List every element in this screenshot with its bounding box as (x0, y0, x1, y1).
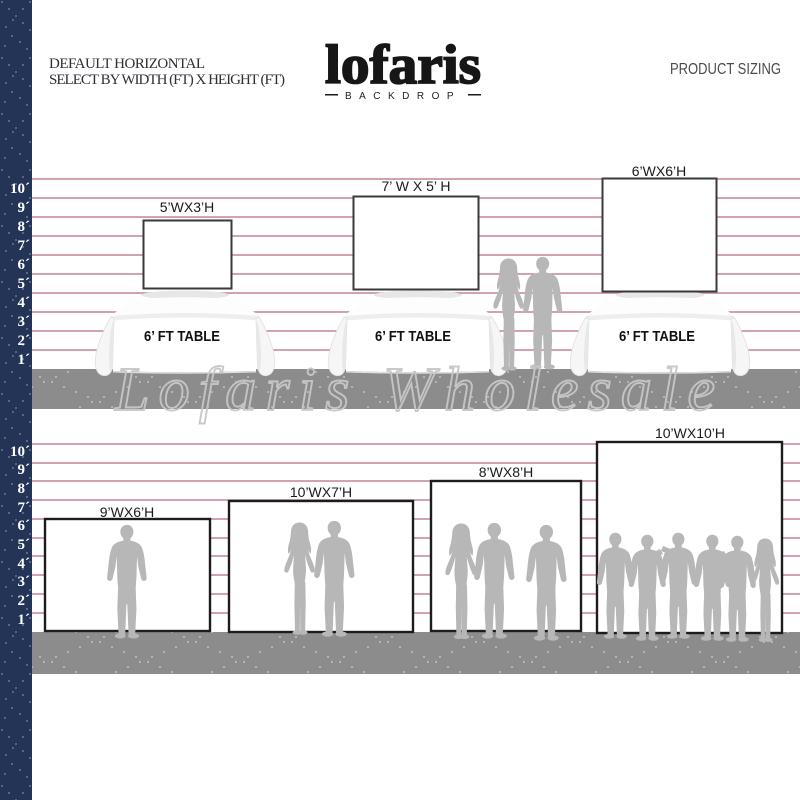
svg-text:10´: 10´ (10, 444, 30, 460)
svg-text:7´: 7´ (18, 500, 31, 516)
svg-text:DEFAULT HORIZONTAL: DEFAULT HORIZONTAL (49, 56, 205, 72)
svg-text:8´: 8´ (18, 219, 31, 235)
svg-text:2´: 2´ (18, 593, 31, 609)
svg-text:10’WX10’H: 10’WX10’H (655, 425, 725, 441)
svg-text:5´: 5´ (18, 537, 31, 553)
svg-text:2´: 2´ (18, 333, 31, 349)
svg-text:5’WX3’H: 5’WX3’H (160, 199, 214, 215)
svg-text:9’WX6’H: 9’WX6’H (100, 504, 154, 520)
svg-text:3´: 3´ (18, 314, 31, 330)
svg-text:10´: 10´ (10, 181, 30, 197)
svg-text:4´: 4´ (18, 556, 31, 572)
svg-text:9´: 9´ (18, 200, 31, 216)
svg-text:1´: 1´ (18, 612, 31, 628)
svg-text:10’WX7’H: 10’WX7’H (290, 484, 352, 500)
svg-text:3´: 3´ (18, 574, 31, 590)
svg-text:6’ FT TABLE: 6’ FT TABLE (144, 328, 220, 345)
svg-text:4´: 4´ (18, 295, 31, 311)
svg-text:7’ W X 5’ H: 7’ W X 5’ H (382, 178, 451, 194)
svg-text:1´: 1´ (18, 352, 31, 368)
svg-text:Lofaris Wholesale: Lofaris Wholesale (114, 356, 715, 424)
svg-text:SELECT BY WIDTH (FT) X HEIGHT: SELECT BY WIDTH (FT) X HEIGHT (FT) (49, 72, 285, 88)
svg-text:6’WX6’H: 6’WX6’H (632, 163, 686, 179)
svg-text:lofaris: lofaris (325, 34, 481, 95)
svg-text:PRODUCT SIZING: PRODUCT SIZING (670, 61, 781, 78)
svg-text:8´: 8´ (18, 481, 31, 497)
svg-text:BACKDROP: BACKDROP (345, 91, 461, 102)
svg-text:6´: 6´ (18, 518, 31, 534)
svg-text:5´: 5´ (18, 276, 31, 292)
svg-text:6´: 6´ (18, 257, 31, 273)
svg-text:9´: 9´ (18, 462, 31, 478)
svg-text:7´: 7´ (18, 238, 31, 254)
svg-text:8’WX8’H: 8’WX8’H (479, 464, 533, 480)
svg-text:6’ FT TABLE: 6’ FT TABLE (619, 328, 695, 345)
svg-text:6’ FT TABLE: 6’ FT TABLE (375, 328, 451, 345)
